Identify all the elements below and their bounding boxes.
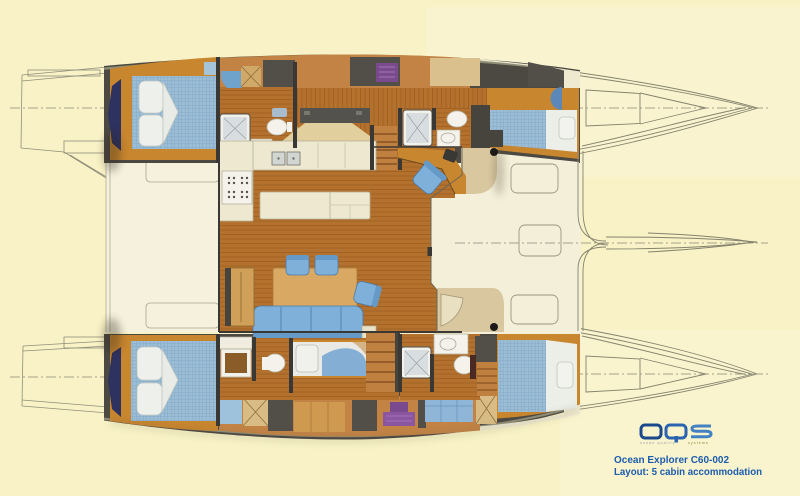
svg-text:Ocean Explorer C60-002: Ocean Explorer C60-002 [614, 455, 729, 466]
svg-text:ocean quality: ocean quality [640, 441, 675, 445]
svg-text:systems: systems [688, 441, 709, 445]
svg-text:Layout: 5 cabin accommodation: Layout: 5 cabin accommodation [614, 467, 762, 478]
